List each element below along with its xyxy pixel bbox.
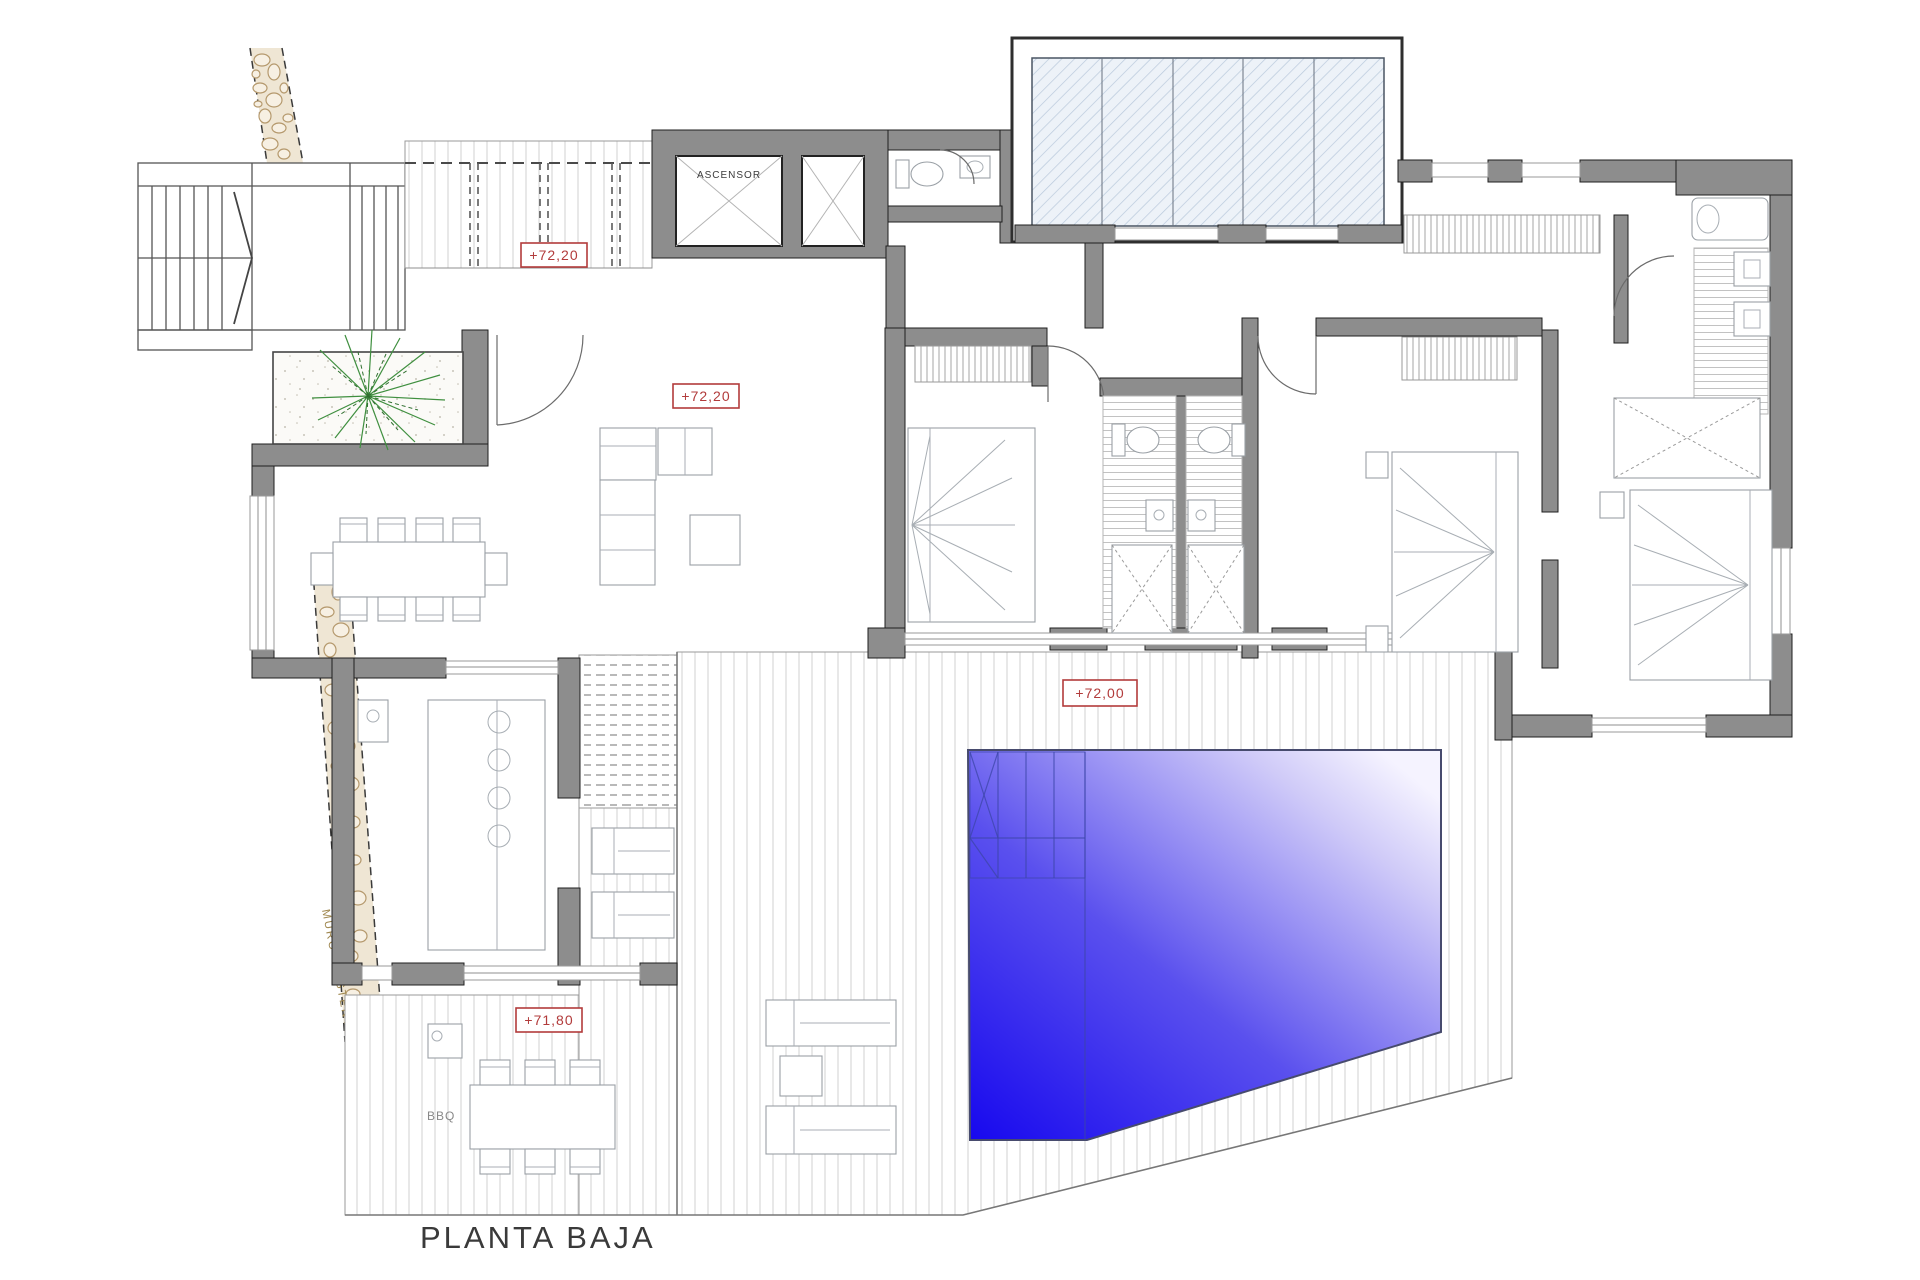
sink-icon <box>960 156 990 178</box>
kitchen <box>358 700 545 950</box>
bathtub-icon <box>1692 198 1768 240</box>
sun-lounger <box>766 1106 896 1154</box>
side-table <box>780 1056 822 1096</box>
shower-right <box>1188 545 1244 633</box>
bed-3 <box>1600 490 1772 680</box>
planter <box>273 330 463 450</box>
sofa-group <box>600 428 740 585</box>
level-label-living: +72,20 <box>681 388 730 404</box>
toilet-left <box>1112 424 1159 456</box>
bed-2 <box>1366 452 1518 652</box>
closet-strip <box>1404 215 1600 253</box>
level-label-porch: +72,20 <box>529 247 578 263</box>
shower-left <box>1112 545 1172 633</box>
kitchen-sink-icon <box>358 700 388 742</box>
plan-title: PLANTA BAJA <box>420 1220 656 1255</box>
toilet-icon <box>896 160 943 188</box>
toilet-right <box>1198 424 1245 456</box>
bed-1 <box>908 428 1035 622</box>
dining-table <box>311 518 507 621</box>
pergola-strip <box>579 655 677 808</box>
bbq-unit <box>428 1024 462 1058</box>
wc-room <box>888 130 1018 243</box>
elevator-block: ASCENSOR <box>652 130 888 258</box>
level-label-bbq: +71,80 <box>524 1012 573 1028</box>
bedroom-2 <box>1366 337 1518 652</box>
sun-lounger <box>592 892 674 938</box>
level-label-deck: +72,00 <box>1075 685 1124 701</box>
bbq-label: BBQ <box>427 1109 455 1123</box>
floor-plan: MURO EXISTENTE <box>0 0 1920 1280</box>
sun-lounger <box>766 1000 896 1046</box>
coffee-table <box>690 515 740 565</box>
skylight <box>1012 38 1402 242</box>
elevator-label: ASCENSOR <box>697 170 761 181</box>
closet-strip <box>1402 337 1517 380</box>
bedroom-1 <box>908 346 1035 622</box>
outdoor-table <box>470 1085 615 1149</box>
sun-lounger <box>592 828 674 874</box>
closet-strip <box>915 346 1031 382</box>
bathrooms-middle <box>1103 396 1245 633</box>
wardrobe-x <box>1614 398 1760 478</box>
sink-right <box>1188 500 1215 531</box>
external-stairs <box>138 163 405 350</box>
kitchen-island <box>428 700 545 950</box>
sink-left <box>1146 500 1173 531</box>
